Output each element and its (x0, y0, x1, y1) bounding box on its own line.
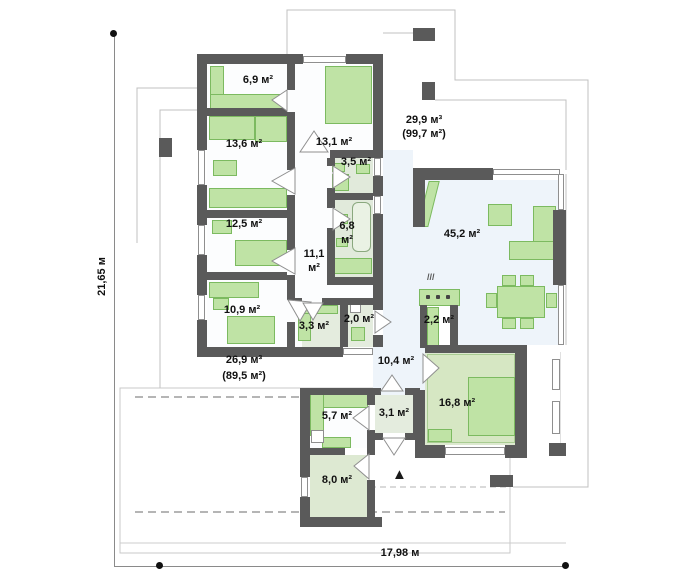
dimension-dot (156, 562, 163, 569)
cooktop-steam-icon: /// (427, 272, 435, 282)
terrace-left-label: 26,9 м³ (192, 354, 296, 367)
room-label-pantry: 2,2 м² (416, 314, 462, 327)
door-swing (272, 248, 295, 274)
door-swing (381, 375, 403, 391)
room-label-bathroom: 6,8 (330, 220, 364, 233)
door-swing (333, 166, 350, 188)
room-label-corridor: 11,1 (294, 248, 334, 261)
room-label-bedroom: 10,9 м² (204, 304, 280, 317)
room-label-vestibule: 3,1 м² (366, 407, 422, 420)
room-label-bathroom-unit: м² (330, 234, 364, 247)
terrace-left-label-2: (89,5 м²) (192, 370, 296, 383)
dimension-dot (562, 562, 569, 569)
room-label-boiler: 8,0 м² (302, 474, 372, 487)
room-label-corridor-unit: м² (294, 262, 334, 275)
room-label-wardrobe: 6,9 м² (220, 74, 296, 87)
door-swing (272, 168, 295, 194)
room-label-bedroom: 13,1 м² (296, 136, 372, 149)
dimension-height-label: 21,65 м (96, 229, 109, 324)
room-label-hall: 10,4 м² (364, 355, 428, 368)
room-label-laundry: 5,7 м² (306, 410, 368, 423)
terrace-top-label-2: (99,7 м²) (376, 128, 472, 141)
door-swing (383, 438, 405, 455)
room-label-wc: 2,0 м² (336, 313, 382, 326)
entrance-arrow-icon: ▲ (392, 468, 407, 482)
room-label-bedroom: 12,5 м² (206, 218, 282, 231)
terrace-top-label: 29,9 м³ (376, 114, 472, 127)
dimension-width-label: 17,98 м (300, 547, 500, 560)
room-label-living: 45,2 м² (424, 228, 500, 241)
floor-plan: 6,9 м² 13,6 м² 13,1 м² 3,5 м² 12,5 м² 6,… (0, 0, 700, 575)
door-swing (272, 90, 287, 111)
room-label-storage: 3,3 м² (288, 320, 340, 333)
room-label-garage: 16,8 м² (424, 397, 490, 410)
room-label-bathroom: 3,5 м² (330, 156, 382, 169)
room-label-bedroom: 13,6 м² (206, 138, 282, 151)
dimension-dot (110, 30, 117, 37)
